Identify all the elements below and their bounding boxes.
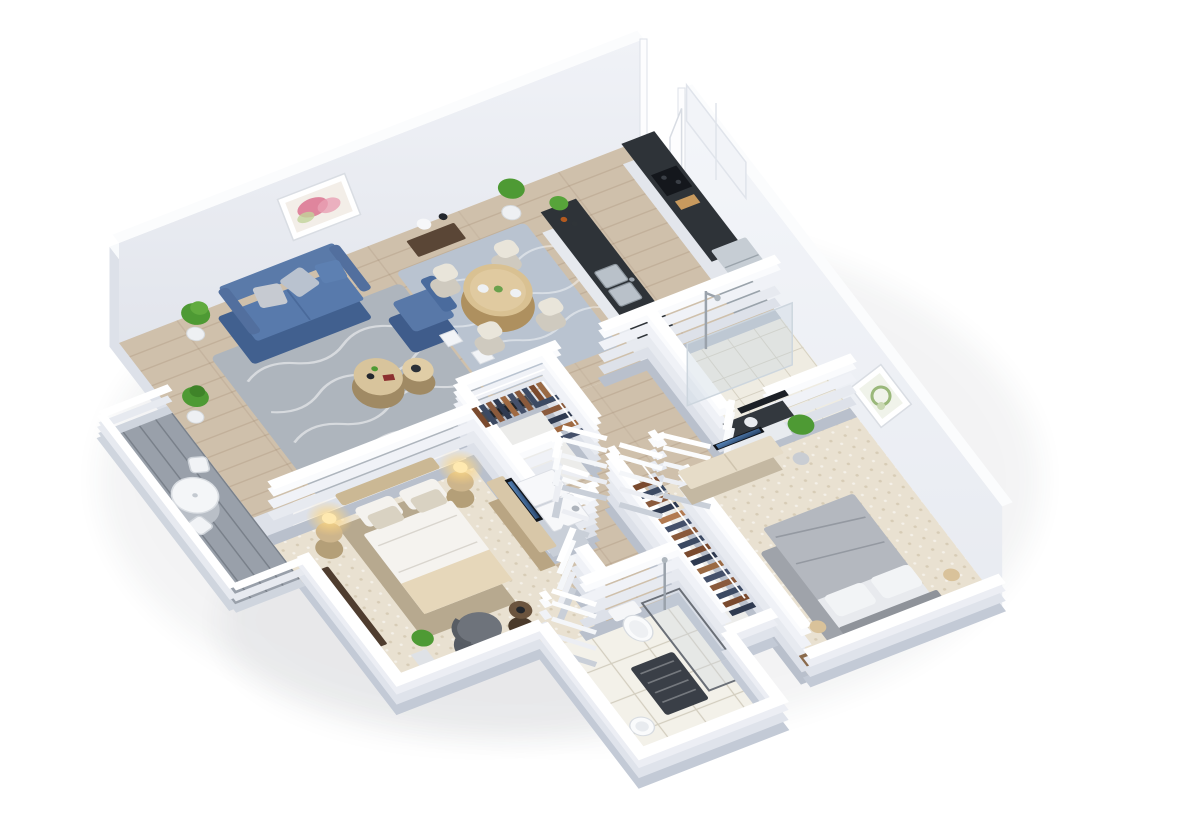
folding-chair bbox=[188, 456, 211, 473]
floor-plan-render: Living room bbox=[0, 0, 1200, 840]
floor-plan-svg: Living room bbox=[0, 0, 1200, 840]
